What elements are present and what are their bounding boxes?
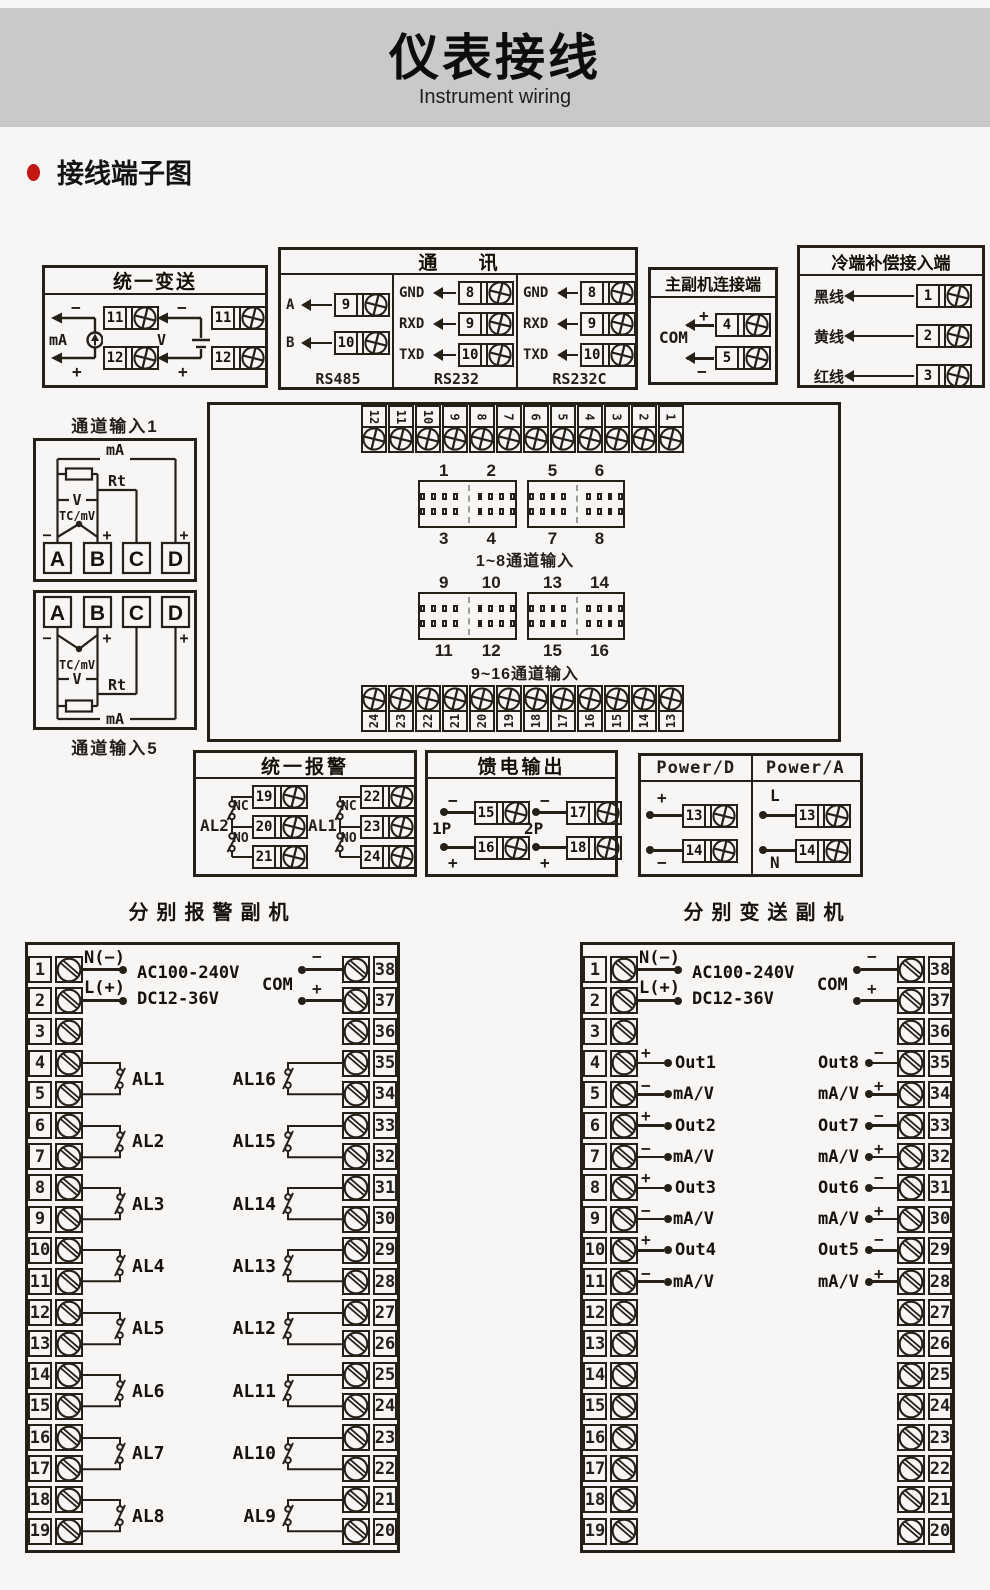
- svg-text:+: +: [102, 629, 111, 647]
- comm-row: TXD10: [399, 343, 514, 367]
- sign-plus: +: [874, 1264, 884, 1283]
- switch-contact-icon: [83, 1061, 129, 1099]
- screw-slot-icon: [898, 1081, 925, 1108]
- feed-group-2p: − 17 2P 18 +: [524, 791, 616, 875]
- connector-pin: [442, 620, 447, 627]
- connector-pin: [442, 605, 447, 612]
- connector-pin: [586, 493, 591, 500]
- alarm-group-al1: AL1 NC NO 22 23 24: [308, 785, 416, 871]
- arrow-icon: [303, 304, 332, 307]
- terminal-2: 2: [28, 987, 83, 1014]
- svg-text:D: D: [168, 548, 183, 571]
- screw-cross-icon: [744, 345, 770, 371]
- connector-pin: [561, 493, 566, 500]
- screw-slot-icon: [56, 1424, 83, 1451]
- screw-cross-icon: [711, 838, 737, 864]
- screw-cross-icon: [389, 844, 415, 870]
- screw-slot-icon: [611, 1393, 638, 1420]
- screw-slot-icon: [898, 1330, 925, 1357]
- terminal-24: 24: [897, 1393, 952, 1420]
- terminal-16: 16: [577, 685, 603, 732]
- alarm-contact-label: AL12: [188, 1318, 276, 1339]
- terminal-20: 20: [897, 1518, 952, 1545]
- terminal-5: 5: [550, 405, 576, 453]
- screw-slot-icon: [611, 1112, 638, 1139]
- screw-slot-icon: [611, 1081, 638, 1108]
- screw-slot-icon: [56, 1455, 83, 1482]
- channel-group-caption-1: 1~8通道输入: [476, 547, 574, 571]
- arrow-icon: [435, 354, 456, 357]
- channel-group-caption-2: 9~16通道输入: [471, 660, 579, 684]
- comm-col-name: RS232: [399, 370, 514, 387]
- connector-pin: [608, 493, 613, 500]
- alarm-unit-strip: 1234567891011121314151617181938373635343…: [25, 942, 400, 1553]
- terminal-28: 28: [342, 1268, 397, 1295]
- connector-pin: [442, 508, 447, 515]
- terminal-7: 7: [496, 405, 522, 453]
- terminal-16: 16: [583, 1424, 638, 1451]
- screw-cross-icon: [824, 838, 850, 864]
- connector-block-4: [527, 592, 625, 640]
- terminal-29: 29: [897, 1237, 952, 1264]
- alarm-contact-label: AL7: [132, 1443, 165, 1464]
- screw-slot-icon: [56, 1206, 83, 1233]
- screw-cross-icon: [389, 784, 415, 810]
- output-label: Out7: [775, 1116, 859, 1136]
- svg-text:Rt: Rt: [108, 472, 126, 490]
- header-banner: 仪表接线 Instrument wiring: [0, 8, 990, 127]
- channel-input-1-label: 通道输入1: [33, 412, 197, 437]
- arrow-icon: [687, 324, 714, 327]
- screw-slot-icon: [56, 1393, 83, 1420]
- comm-row: B10: [286, 331, 390, 355]
- terminal-10: 10: [28, 1237, 83, 1264]
- feed-group-name: 1P: [432, 819, 451, 838]
- screw-slot-icon: [56, 1143, 83, 1170]
- screw-slot-icon: [611, 1299, 638, 1326]
- connector-pin-label: 1: [439, 461, 448, 481]
- junction-dot: [853, 997, 861, 1005]
- wire: [536, 811, 566, 814]
- terminal-25: 25: [342, 1362, 397, 1389]
- connector-pin: [499, 508, 504, 515]
- connector-pin-label: 6: [595, 461, 604, 481]
- connector-pin-label: 8: [595, 529, 604, 549]
- sign-plus: +: [874, 1201, 884, 1220]
- connector-pin-label: 4: [487, 529, 496, 549]
- svg-text:B: B: [90, 548, 105, 571]
- output-label: Out4: [675, 1240, 716, 1260]
- screw-slot-icon: [343, 1112, 370, 1139]
- output-label: Out8: [775, 1053, 859, 1073]
- wire: [638, 1093, 664, 1096]
- connector-pin: [499, 493, 504, 500]
- terminal-34: 34: [342, 1081, 397, 1108]
- screw-slot-icon: [611, 1174, 638, 1201]
- terminal: 17: [566, 801, 622, 825]
- terminal-13: 13: [28, 1330, 83, 1357]
- signal-label: mA/V: [775, 1272, 859, 1292]
- wire: [763, 849, 795, 852]
- screw-slot-icon: [898, 1424, 925, 1451]
- power-a-title: Power/A: [751, 756, 861, 780]
- alarm-contact-label: AL9: [188, 1506, 276, 1527]
- screw-cross-icon: [388, 426, 414, 452]
- svg-text:B: B: [90, 602, 105, 625]
- screw-cross-icon: [281, 784, 307, 810]
- sign-plus: +: [641, 1230, 651, 1249]
- wire: [638, 1187, 664, 1190]
- signal-label: mA/V: [673, 1084, 714, 1104]
- screw-slot-icon: [343, 1362, 370, 1389]
- terminal-38: 38: [897, 956, 952, 983]
- arrow-icon: [559, 292, 578, 295]
- svg-text:A: A: [50, 548, 65, 571]
- junction-dot: [119, 966, 127, 974]
- screw-cross-icon: [281, 844, 307, 870]
- connector-pin: [586, 620, 591, 627]
- alarm-contact-label: AL10: [188, 1443, 276, 1464]
- terminal-20: 20: [342, 1518, 397, 1545]
- connector-pin: [561, 508, 566, 515]
- com-label: COM: [817, 975, 848, 995]
- screw-slot-icon: [343, 987, 370, 1014]
- terminal-36: 36: [342, 1018, 397, 1045]
- screw-cross-icon: [604, 426, 630, 452]
- supply-l-label: L(+): [84, 978, 125, 998]
- connector-pin-label: 15: [543, 641, 562, 661]
- main-top-terminal-row: 121110987654321: [361, 405, 684, 453]
- connector-pin: [488, 508, 493, 515]
- svg-text:V: V: [72, 491, 81, 509]
- terminal: 23: [360, 815, 416, 839]
- connector-pin-label: 14: [590, 573, 609, 593]
- screw-cross-icon: [631, 426, 657, 452]
- screw-cross-icon: [415, 426, 441, 452]
- terminal-35: 35: [897, 1050, 952, 1077]
- feed-output-title: 馈电输出: [428, 753, 615, 779]
- wire: [871, 1187, 897, 1190]
- connector-pin: [551, 605, 556, 612]
- terminal-2: 2: [631, 405, 657, 453]
- screw-slot-icon: [56, 1112, 83, 1139]
- connector-pin: [608, 605, 613, 612]
- arrow-icon: [559, 323, 578, 326]
- connector-pin: [420, 493, 425, 500]
- screw-cross-icon: [281, 814, 307, 840]
- screw-cross-icon: [609, 311, 635, 337]
- screw-cross-icon: [595, 800, 621, 826]
- sign-plus: +: [641, 1043, 651, 1062]
- supply-n-label: N(−): [639, 948, 680, 968]
- signal-label: mA/V: [673, 1209, 714, 1229]
- screw-cross-icon: [240, 345, 266, 371]
- terminal-22: 22: [342, 1455, 397, 1482]
- screw-slot-icon: [611, 1050, 638, 1077]
- relay-contact-icon: [224, 785, 252, 871]
- comm-col-rs485: A9 B10 RS485: [281, 275, 392, 388]
- terminal-31: 31: [897, 1174, 952, 1201]
- switch-contact-icon: [83, 1248, 129, 1286]
- connector-pin: [453, 508, 458, 515]
- comm-row: RXD9: [523, 312, 636, 336]
- alarm-contact-label: AL13: [188, 1256, 276, 1277]
- terminal: 12: [103, 346, 159, 370]
- screw-slot-icon: [898, 1455, 925, 1482]
- connector-pin: [478, 605, 483, 612]
- connector-pin: [618, 493, 623, 500]
- alarm-group-al2: AL2 NC NO 19 20 21: [200, 785, 308, 871]
- terminal-10: 10: [415, 405, 441, 453]
- terminal-1: 1: [658, 405, 684, 453]
- screw-slot-icon: [898, 1206, 925, 1233]
- switch-contact-icon: [83, 1311, 129, 1349]
- transmit-v-group: − V + 11 12: [155, 300, 265, 384]
- arrow-icon: [435, 323, 456, 326]
- com-label: COM: [262, 975, 293, 995]
- screw-slot-icon: [343, 1299, 370, 1326]
- comm-col-rs232: GND8 RXD9 TXD10 RS232: [392, 275, 516, 388]
- screw-cross-icon: [595, 835, 621, 861]
- terminal-5: 5: [28, 1081, 83, 1108]
- terminal: 24: [360, 845, 416, 869]
- screw-slot-icon: [611, 1143, 638, 1170]
- terminal-6: 6: [583, 1112, 638, 1139]
- terminal-19: 19: [496, 685, 522, 732]
- connector-block-1: [418, 480, 517, 528]
- screw-slot-icon: [343, 1486, 370, 1513]
- wire: [638, 1280, 664, 1283]
- screw-cross-icon: [604, 686, 630, 712]
- svg-text:−: −: [42, 526, 51, 544]
- transmit-ma-group: − mA + 11 12: [49, 300, 159, 384]
- connector-pin: [586, 605, 591, 612]
- screw-cross-icon: [550, 426, 576, 452]
- junction-dot: [664, 1278, 672, 1286]
- connector-pin: [540, 605, 545, 612]
- terminal: 11: [103, 306, 159, 330]
- screw-cross-icon: [388, 686, 414, 712]
- terminal-37: 37: [897, 987, 952, 1014]
- svg-text:mA: mA: [106, 710, 124, 727]
- screw-slot-icon: [56, 1268, 83, 1295]
- alarm-contact-label: AL16: [188, 1069, 276, 1090]
- terminal-15: 15: [604, 685, 630, 732]
- screw-slot-icon: [56, 1362, 83, 1389]
- junction-dot: [119, 997, 127, 1005]
- signal-label: mA/V: [673, 1272, 714, 1292]
- connector-pin: [488, 605, 493, 612]
- terminal-24: 24: [342, 1393, 397, 1420]
- screw-slot-icon: [56, 1050, 83, 1077]
- svg-text:Rt: Rt: [108, 676, 126, 694]
- screw-slot-icon: [898, 1299, 925, 1326]
- connector-pin: [442, 493, 447, 500]
- terminal-12: 12: [583, 1299, 638, 1326]
- sign-plus: +: [874, 1076, 884, 1095]
- screw-slot-icon: [343, 1268, 370, 1295]
- screw-cross-icon: [496, 686, 522, 712]
- terminal: 22: [360, 785, 416, 809]
- terminal-31: 31: [342, 1174, 397, 1201]
- terminal-22: 22: [897, 1455, 952, 1482]
- connector-pin: [510, 605, 515, 612]
- sign-plus: +: [641, 1106, 651, 1125]
- signal-label: mA/V: [673, 1147, 714, 1167]
- terminal-9: 9: [583, 1206, 638, 1233]
- terminal-7: 7: [28, 1143, 83, 1170]
- signal-label: mA/V: [775, 1209, 859, 1229]
- channel-input-1-box: mA Rt V TC/mV − + + A B C D: [33, 438, 197, 582]
- connector-pin-label: 11: [435, 641, 453, 661]
- cold-comp-row: 黑线1: [814, 284, 972, 308]
- main-terminal-box: 121110987654321 1~8通道输入 9~16通道输入 2423222…: [207, 402, 841, 742]
- terminal-4: 4: [583, 1050, 638, 1077]
- switch-contact-icon: [83, 1124, 129, 1162]
- svg-text:+: +: [102, 526, 111, 544]
- terminal: 15: [474, 801, 530, 825]
- connector-pin-label: 9: [439, 573, 448, 593]
- screw-cross-icon: [487, 280, 513, 306]
- comm-row: GND8: [523, 281, 636, 305]
- alarm-contact-label: AL5: [132, 1318, 165, 1339]
- screw-cross-icon: [442, 686, 468, 712]
- wire: [871, 1124, 897, 1127]
- screw-slot-icon: [898, 1393, 925, 1420]
- main-bottom-terminal-row: 242322212019181716151413: [361, 685, 684, 732]
- terminal-16: 16: [28, 1424, 83, 1451]
- screw-slot-icon: [343, 1206, 370, 1233]
- arrow-icon: [303, 342, 332, 345]
- junction-dot: [674, 966, 682, 974]
- connector-pin: [540, 508, 545, 515]
- terminal-13: 13: [583, 1330, 638, 1357]
- sign-plus: +: [641, 1168, 651, 1187]
- terminal-18: 18: [523, 685, 549, 732]
- switch-contact-icon: [280, 1124, 342, 1162]
- wire: [638, 968, 676, 971]
- switch-contact-icon: [83, 1373, 129, 1411]
- junction-dot: [664, 1090, 672, 1098]
- sign-plus: +: [312, 979, 322, 998]
- switch-contact-icon: [280, 1248, 342, 1286]
- connector-pin: [561, 605, 566, 612]
- terminal-30: 30: [897, 1206, 952, 1233]
- terminal-15: 15: [583, 1393, 638, 1420]
- screw-cross-icon: [658, 426, 684, 452]
- power-d-title: Power/D: [641, 756, 751, 780]
- wire: [871, 1249, 897, 1252]
- terminal: 14: [795, 839, 851, 863]
- connector-pin: [586, 508, 591, 515]
- screw-cross-icon: [240, 305, 266, 331]
- output-label: Out2: [675, 1116, 716, 1136]
- connector-pin: [420, 620, 425, 627]
- screw-cross-icon: [609, 342, 635, 368]
- screw-cross-icon: [487, 342, 513, 368]
- screw-cross-icon: [363, 292, 389, 318]
- terminal-1: 1: [28, 956, 83, 983]
- connector-pin: [431, 493, 436, 500]
- connector-pin-label: 13: [543, 573, 562, 593]
- terminal-15: 15: [28, 1393, 83, 1420]
- terminal: 11: [211, 306, 267, 330]
- screw-slot-icon: [898, 1143, 925, 1170]
- terminal: 13: [795, 804, 851, 828]
- screw-slot-icon: [898, 1018, 925, 1045]
- switch-contact-icon: [280, 1186, 342, 1224]
- comm-col-rs232c: GND8 RXD9 TXD10 RS232C: [516, 275, 638, 388]
- screw-slot-icon: [56, 1486, 83, 1513]
- sign-plus: +: [178, 362, 188, 381]
- screw-slot-icon: [343, 1018, 370, 1045]
- arrow-icon: [435, 292, 456, 295]
- connector-pin-label: 3: [439, 529, 448, 549]
- junction-dot: [674, 997, 682, 1005]
- alarm-contact-label: AL8: [132, 1506, 165, 1527]
- alarm-contact-label: AL6: [132, 1381, 165, 1402]
- connector-pin: [597, 508, 602, 515]
- terminal-34: 34: [897, 1081, 952, 1108]
- screw-cross-icon: [469, 686, 495, 712]
- sign-plus: +: [867, 979, 877, 998]
- connector-pin: [540, 493, 545, 500]
- svg-text:TC/mV: TC/mV: [59, 509, 95, 523]
- page-subtitle: Instrument wiring: [0, 86, 990, 109]
- connector-pin: [453, 605, 458, 612]
- screw-cross-icon: [824, 803, 850, 829]
- screw-cross-icon: [711, 803, 737, 829]
- screw-slot-icon: [898, 1268, 925, 1295]
- wire: [638, 1156, 664, 1159]
- terminal: 21: [252, 845, 308, 869]
- screw-slot-icon: [56, 987, 83, 1014]
- junction-dot: [664, 1246, 672, 1254]
- junction-dot: [298, 966, 306, 974]
- signal-label: mA/V: [775, 1084, 859, 1104]
- terminal-23: 23: [342, 1424, 397, 1451]
- wire: [444, 846, 474, 849]
- terminal-19: 19: [28, 1518, 83, 1545]
- connector-pin: [529, 508, 534, 515]
- sign-minus: −: [874, 1106, 884, 1125]
- screw-slot-icon: [611, 987, 638, 1014]
- v-label: V: [157, 331, 166, 349]
- connector-block-2: [527, 480, 625, 528]
- terminal-5: 5: [583, 1081, 638, 1108]
- cold-comp-row: 黄线2: [814, 324, 972, 348]
- terminal-24: 24: [361, 685, 387, 732]
- supply-ac-label: AC100-240V: [692, 963, 794, 983]
- screw-slot-icon: [611, 1486, 638, 1513]
- cold-comp-title: 冷端补偿接入端: [800, 248, 982, 276]
- wire: [638, 999, 676, 1002]
- screw-cross-icon: [469, 426, 495, 452]
- junction-dot: [664, 1153, 672, 1161]
- switch-contact-icon: [280, 1061, 342, 1099]
- alarm-contact-label: AL2: [132, 1131, 165, 1152]
- connector-pin: [420, 508, 425, 515]
- screw-slot-icon: [343, 1174, 370, 1201]
- connector-pin-label: 16: [590, 641, 609, 661]
- terminal-23: 23: [897, 1424, 952, 1451]
- terminal-35: 35: [342, 1050, 397, 1077]
- terminal-6: 6: [28, 1112, 83, 1139]
- connector-pin: [488, 620, 493, 627]
- terminal-18: 18: [28, 1486, 83, 1513]
- wire: [650, 814, 682, 817]
- connector-pin: [499, 605, 504, 612]
